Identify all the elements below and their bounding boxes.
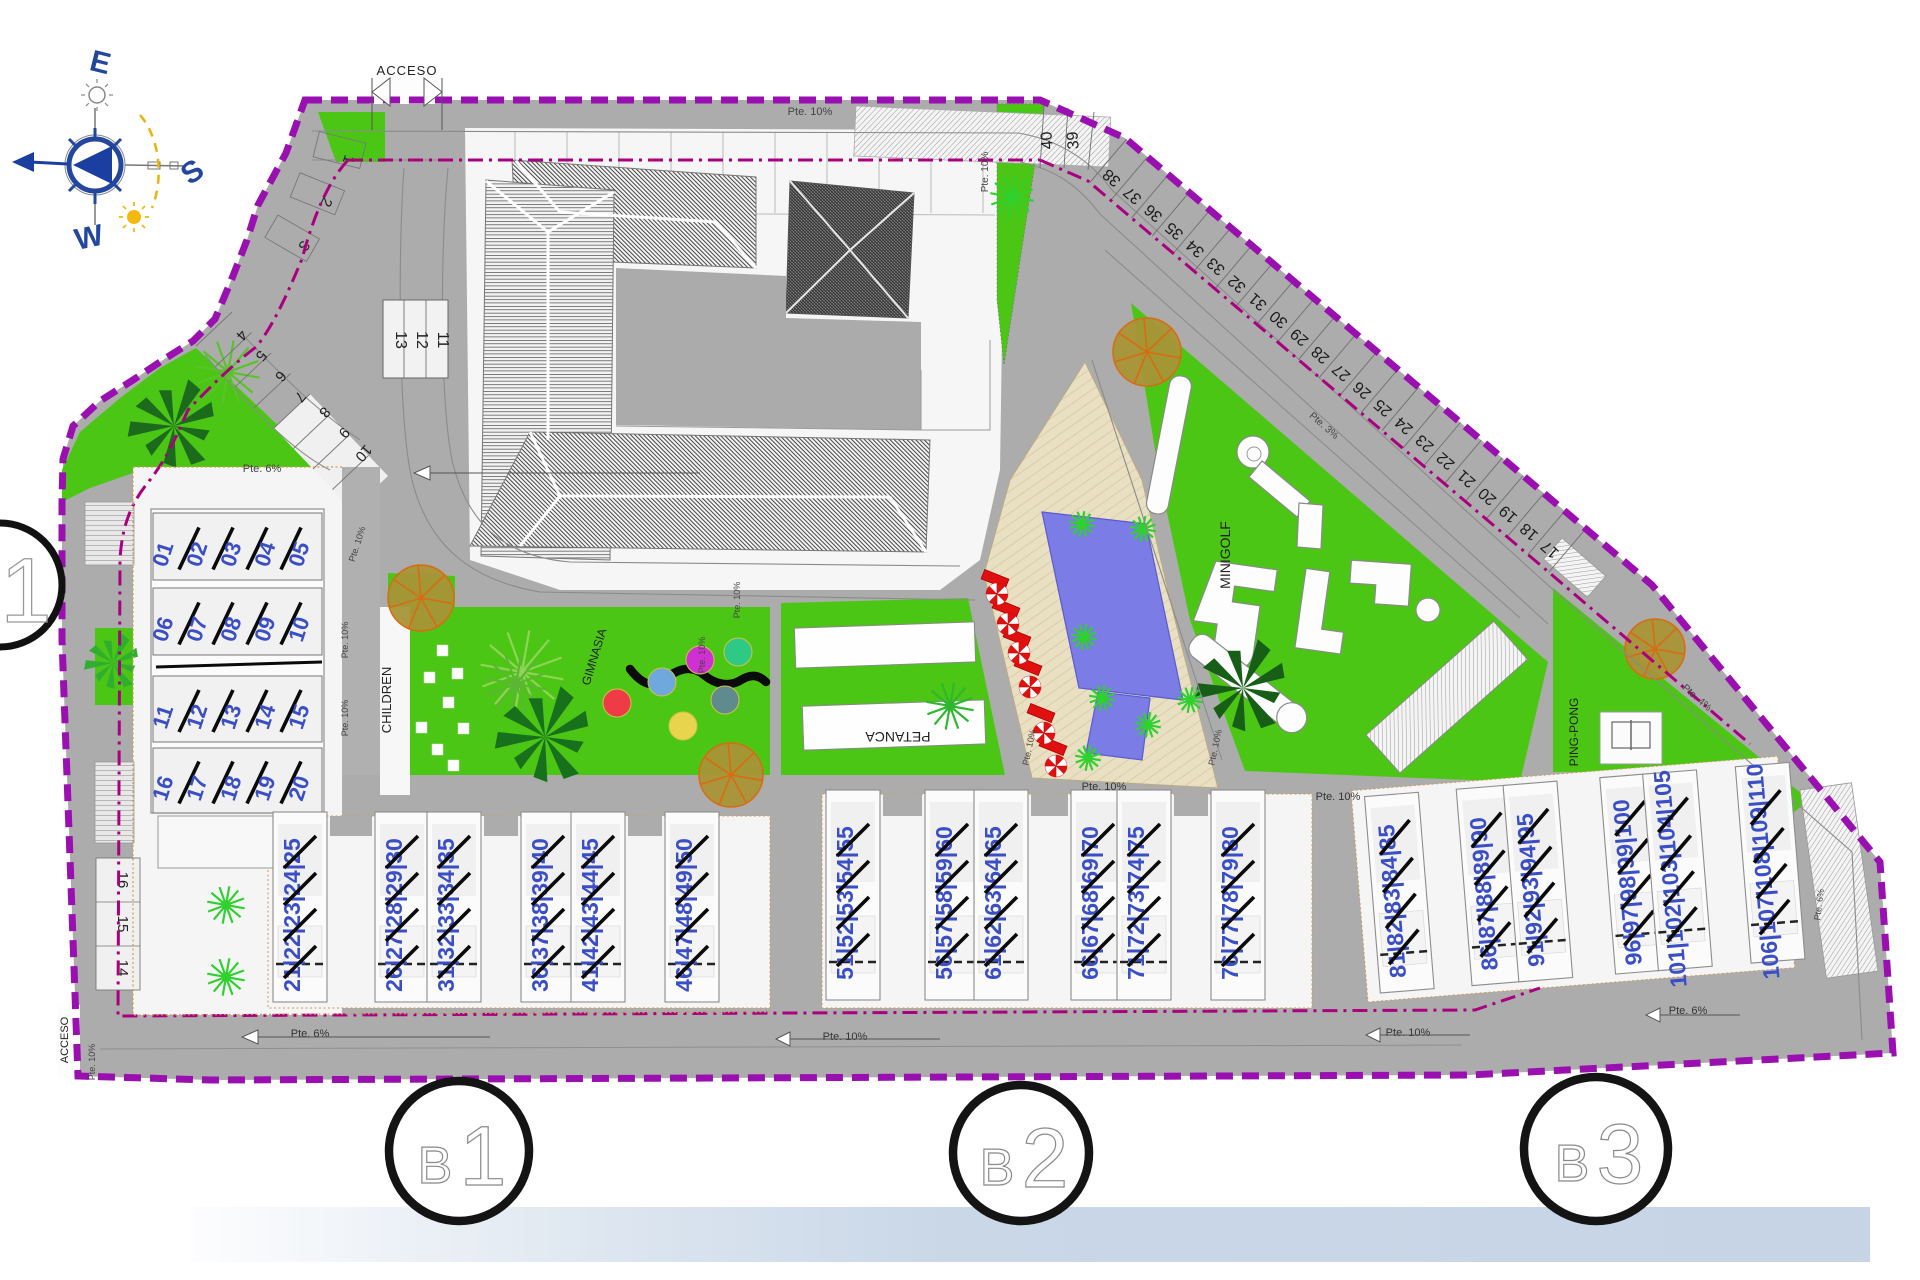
svg-text:1: 1 (460, 1109, 507, 1203)
svg-text:Pte. 10%: Pte. 10% (1082, 781, 1127, 793)
svg-text:11: 11 (434, 332, 451, 349)
svg-text:Pte. 10%: Pte. 10% (340, 622, 350, 659)
svg-text:Pte. 10%: Pte. 10% (823, 1031, 868, 1043)
svg-text:3: 3 (1597, 1107, 1644, 1201)
svg-text:16: 16 (114, 872, 131, 889)
svg-text:PETANCA: PETANCA (865, 729, 931, 745)
svg-text:CHILDREN: CHILDREN (379, 667, 394, 733)
svg-text:B: B (980, 1139, 1015, 1197)
svg-text:Pte. 10%: Pte. 10% (1386, 1027, 1431, 1039)
svg-text:ACCESO: ACCESO (59, 1016, 71, 1063)
svg-text:B: B (1555, 1135, 1590, 1193)
svg-text:Pte. 10%: Pte. 10% (732, 582, 742, 619)
svg-text:MINIGOLF: MINIGOLF (1217, 521, 1233, 589)
svg-text:ACCESO: ACCESO (377, 63, 438, 78)
svg-text:Pte. 6%: Pte. 6% (243, 463, 282, 475)
svg-text:39: 39 (1064, 131, 1082, 150)
svg-text:40: 40 (1038, 131, 1056, 150)
svg-text:B: B (418, 1137, 453, 1195)
svg-text:14: 14 (114, 960, 131, 977)
svg-text:Pte. 10%: Pte. 10% (788, 106, 833, 118)
svg-text:Pte. 10%: Pte. 10% (980, 152, 991, 193)
svg-text:Pte. 10%: Pte. 10% (697, 637, 707, 674)
svg-text:12: 12 (413, 331, 430, 349)
svg-text:Pte. 6%: Pte. 6% (291, 1028, 330, 1040)
svg-text:Pte. 10%: Pte. 10% (87, 1044, 97, 1081)
svg-text:Pte. 10%: Pte. 10% (1316, 791, 1361, 803)
svg-text:Pte. 10%: Pte. 10% (340, 700, 350, 737)
svg-text:1: 1 (0, 540, 51, 642)
svg-text:PING-PONG: PING-PONG (1567, 698, 1581, 767)
svg-text:2: 2 (1022, 1111, 1069, 1205)
svg-text:15: 15 (114, 916, 131, 933)
svg-text:13: 13 (392, 331, 409, 349)
